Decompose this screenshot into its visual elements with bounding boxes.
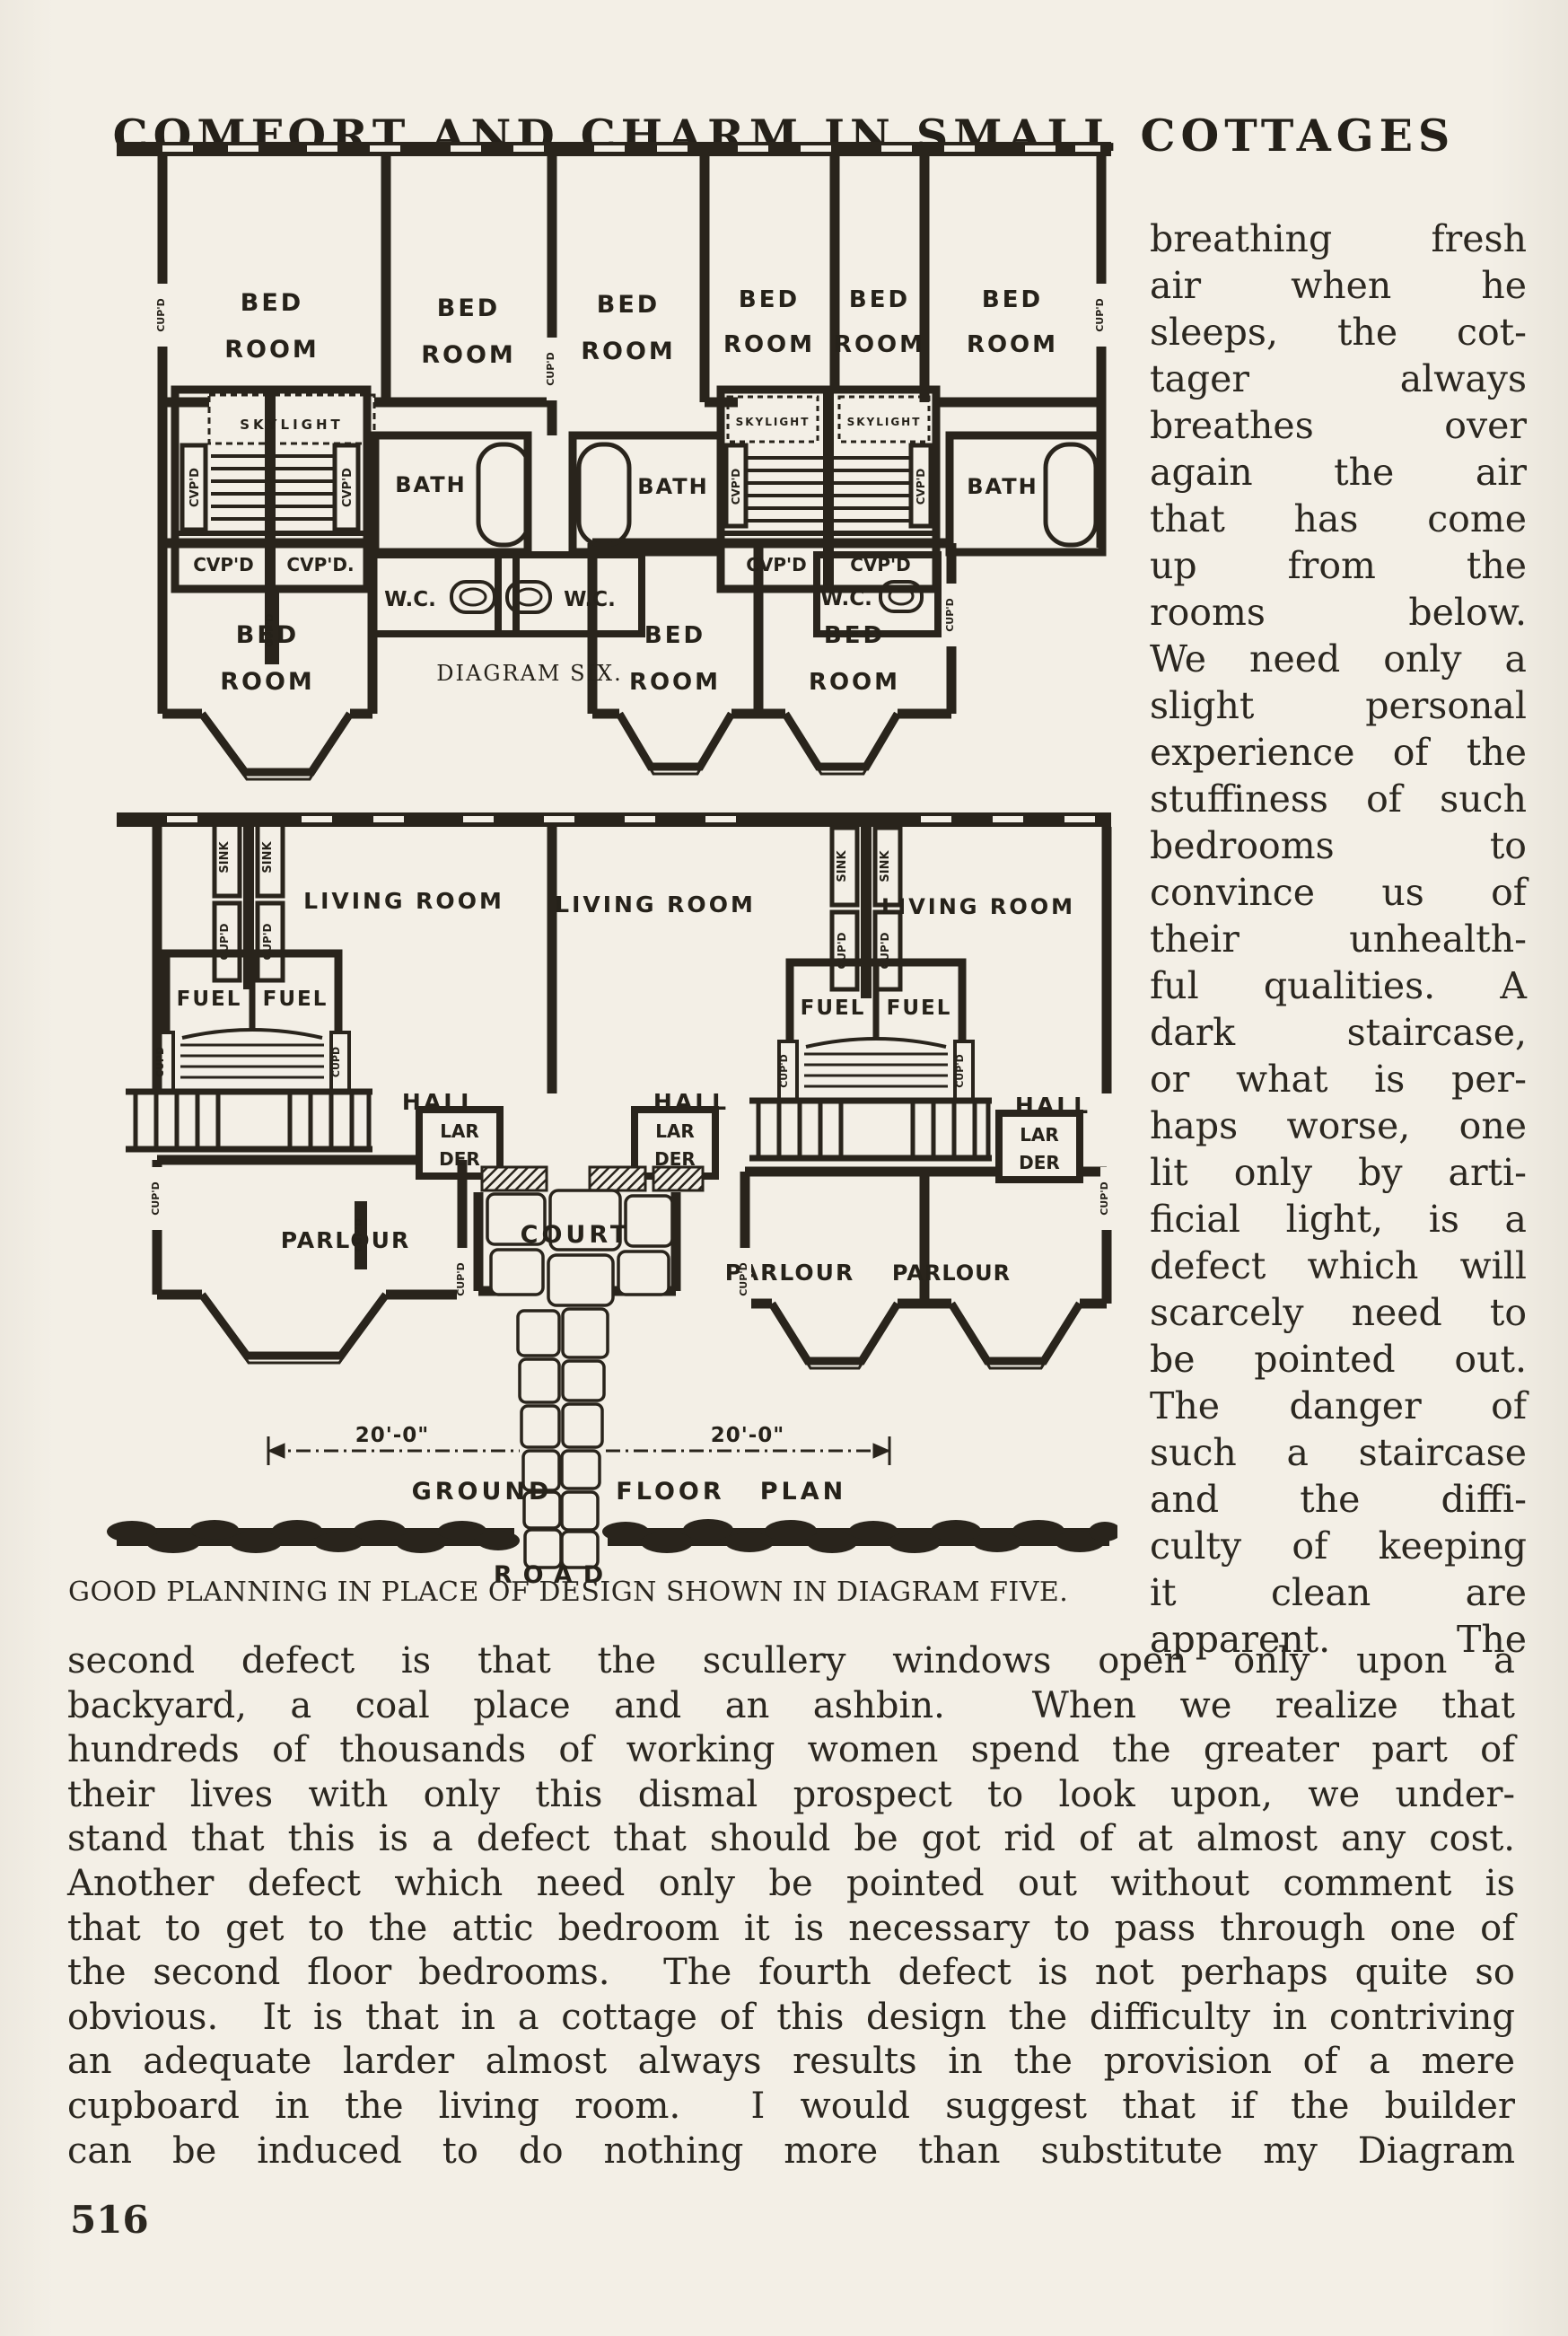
text-line: breathes over xyxy=(1150,402,1527,449)
bedroom-label: BED xyxy=(437,294,500,322)
cupboard-label: CUPD xyxy=(330,1047,342,1077)
plan-title-word: PLAN xyxy=(760,1478,847,1506)
text-line: sleeps, the cot- xyxy=(1150,309,1527,356)
cupboard-label: CUPD xyxy=(154,1047,166,1077)
bedroom-label: ROOM xyxy=(723,331,815,358)
text-line: the second floor bedrooms. The fourth de… xyxy=(67,1951,1515,1996)
text-line: hundreds of thousands of working women s… xyxy=(67,1728,1515,1773)
bedroom-label: ROOM xyxy=(581,338,676,365)
living-room-label: LIVING ROOM xyxy=(555,891,756,918)
bedroom-label: ROOM xyxy=(224,336,320,364)
ground-floor-plan-title: GROUND FLOOR PLAN xyxy=(412,1478,847,1506)
fuel-label: FUEL xyxy=(263,988,328,1011)
bedroom-label: BED xyxy=(236,621,299,649)
text-line: that to get to the attic bedroom it is n… xyxy=(67,1907,1515,1952)
bedroom-label: ROOM xyxy=(809,669,900,696)
book-page: COMFORT AND CHARM IN SMALL COTTAGES xyxy=(0,0,1568,2336)
cupboard-label: CUP'D xyxy=(1094,298,1106,332)
bay-windows-upper xyxy=(202,714,898,779)
text-line: scarcely need to xyxy=(1150,1289,1527,1336)
text-line: their lives with only this dismal prospe… xyxy=(67,1773,1515,1818)
larder-label: LAR xyxy=(440,1120,479,1142)
road-wall xyxy=(107,1519,1117,1553)
text-line: We need only a xyxy=(1150,636,1527,682)
text-line: obvious. It is that in a cottage of this… xyxy=(67,1996,1515,2041)
dimension-label: 20'-0" xyxy=(711,1424,785,1447)
text-line: convince us of xyxy=(1150,869,1527,916)
bedroom-label: ROOM xyxy=(220,668,315,696)
cupboard-label: CVP'D xyxy=(193,554,254,575)
skylight-label: SKYLIGHT xyxy=(847,416,922,428)
bedroom-labels-front: BED ROOM BED ROOM BED ROOM BED ROOM BED … xyxy=(224,286,1058,369)
fuel-label: FUEL xyxy=(177,988,242,1011)
text-line: tager always xyxy=(1150,356,1527,402)
upper-floor-plan: SKYLIGHT CVP'D CVP'D CVP'D CVP'D. CVP'D xyxy=(117,142,1111,779)
bath-label: BATH xyxy=(637,474,708,499)
cupboard-label: CVP'D xyxy=(188,468,202,507)
sink-label: SINK xyxy=(836,849,849,882)
text-line: their unhealth- xyxy=(1150,916,1527,962)
text-line: up from the xyxy=(1150,542,1527,589)
bedroom-label: BED xyxy=(824,622,885,649)
cupboard-label: CUP'D xyxy=(155,298,167,332)
porch-railings xyxy=(126,1092,992,1158)
cupboard-label: CUP'D xyxy=(150,1181,162,1216)
text-line: and the diffi- xyxy=(1150,1476,1527,1523)
sink-label: SINK xyxy=(879,849,892,882)
text-line: backyard, a coal place and an ashbin. Wh… xyxy=(67,1684,1515,1729)
fuel-label: FUEL xyxy=(801,997,866,1020)
skylight-label: SKYLIGHT xyxy=(736,416,810,428)
larder-label: LAR xyxy=(1020,1124,1059,1146)
text-line: be pointed out. xyxy=(1150,1336,1527,1383)
cupboard-label: CUP'D xyxy=(738,1262,749,1296)
bedroom-label: BED xyxy=(849,286,910,313)
bath-label: BATH xyxy=(395,472,466,497)
text-line: slight personal xyxy=(1150,682,1527,729)
text-line: can be induced to do nothing more than s… xyxy=(67,2130,1515,2174)
bathtub-icon xyxy=(579,444,629,545)
ground-floor-plan: SINK SINK CUP'D CUP'D SINK SINK CUP'D CU… xyxy=(107,812,1117,1585)
text-line: again the air xyxy=(1150,449,1527,496)
bedroom-label: BED xyxy=(241,289,303,317)
sink-label: SINK xyxy=(218,840,232,873)
bath-label: BATH xyxy=(967,474,1038,499)
skylight-label: SKYLIGHT xyxy=(240,417,344,433)
bedroom-label: ROOM xyxy=(629,669,721,696)
text-line: second defect is that the scullery windo… xyxy=(67,1639,1515,1684)
text-line: or what is per- xyxy=(1150,1056,1527,1102)
larder-label: DER xyxy=(1019,1152,1060,1173)
toilet-icon xyxy=(451,582,495,612)
wc-label: W.C. xyxy=(820,587,872,610)
cupboard-label: CVP'D. xyxy=(286,554,354,575)
text-line: stand that this is a defect that should … xyxy=(67,1817,1515,1862)
text-line: bedrooms to xyxy=(1150,822,1527,869)
parlour-label: PARLOUR xyxy=(281,1227,410,1253)
cupboard-label: CVP'D xyxy=(341,468,355,507)
text-line: cupboard in the living room. I would sug… xyxy=(67,2085,1515,2130)
living-room-label: LIVING ROOM xyxy=(881,894,1075,919)
fuel-label: FUEL xyxy=(887,997,952,1020)
cupboard-label: CVP'D xyxy=(915,469,927,505)
cupboard-label: CVP'D xyxy=(746,554,807,575)
cupboard-label: CUP'D xyxy=(1099,1181,1110,1216)
bathtub-icon xyxy=(478,444,529,545)
bedroom-label: BED xyxy=(644,622,705,649)
larder-label: DER xyxy=(439,1148,480,1170)
bedroom-label: BED xyxy=(597,291,660,319)
cupboard-label: CUP'D xyxy=(545,352,556,386)
court-sills xyxy=(482,1167,703,1190)
text-line: that has come xyxy=(1150,496,1527,542)
text-line: Another defect which need only be pointe… xyxy=(67,1862,1515,1907)
text-line: culty of keeping xyxy=(1150,1523,1527,1569)
living-room-label: LIVING ROOM xyxy=(303,888,504,914)
text-line: experience of the xyxy=(1150,729,1527,776)
diagram-title: DIAGRAM SIX. xyxy=(436,661,622,686)
figure-caption: GOOD PLANNING IN PLACE OF DESIGN SHOWN I… xyxy=(68,1576,1082,1608)
text-line: air when he xyxy=(1150,262,1527,309)
text-line: defect which will xyxy=(1150,1243,1527,1289)
text-line: lit only by arti- xyxy=(1150,1149,1527,1196)
text-line: haps worse, one xyxy=(1150,1102,1527,1149)
cupboard-label: CUP'D xyxy=(944,598,956,632)
plan-title-word: GROUND xyxy=(412,1478,553,1506)
staircase-middle: SKYLIGHT SKYLIGHT CVP'D CVP'D CVP'D CVP'… xyxy=(721,390,936,589)
cupboard-label: CUP'D xyxy=(353,1218,364,1252)
text-line: ful qualities. A xyxy=(1150,962,1527,1009)
right-text-column: breathing fresh air when he sleeps, the … xyxy=(1150,215,1527,1663)
text-line: stuffiness of such xyxy=(1150,776,1527,822)
body-paragraph: second defect is that the scullery windo… xyxy=(67,1639,1515,2174)
text-line: ficial light, is a xyxy=(1150,1196,1527,1243)
court-label: COURT xyxy=(521,1221,631,1249)
text-line: The danger of xyxy=(1150,1383,1527,1429)
cupboard-label: CUP'D xyxy=(455,1262,467,1296)
text-line: an adequate larder almost always results… xyxy=(67,2040,1515,2085)
plan-title-word: FLOOR xyxy=(616,1478,724,1506)
text-line: such a staircase xyxy=(1150,1429,1527,1476)
front-wall xyxy=(117,142,1111,156)
text-line: it clean are xyxy=(1150,1569,1527,1616)
page-number: 516 xyxy=(70,2198,149,2242)
bedroom-label: BED xyxy=(739,286,800,313)
diagram-six-svg: SKYLIGHT CVP'D CVP'D CVP'D CVP'D. CVP'D xyxy=(76,135,1117,1585)
dimension-label: 20'-0" xyxy=(355,1424,430,1447)
text-line: breathing fresh xyxy=(1150,215,1527,262)
wc-label: W.C. xyxy=(564,588,616,611)
sink-label: SINK xyxy=(261,840,275,873)
cupboard-label: CUP'D xyxy=(954,1054,966,1088)
cupboard-label: CVP'D xyxy=(730,469,742,505)
cupboard-label: CUP'D xyxy=(778,1054,790,1088)
bedroom-label: ROOM xyxy=(834,331,925,358)
larder-label: LAR xyxy=(655,1120,695,1142)
wc-label: W.C. xyxy=(384,588,436,611)
bedroom-label: ROOM xyxy=(967,331,1058,358)
bedroom-label: ROOM xyxy=(421,341,516,369)
text-line: rooms below. xyxy=(1150,589,1527,636)
bedroom-label: BED xyxy=(982,286,1043,313)
parlour-label: PARLOUR xyxy=(892,1260,1011,1286)
text-line: dark staircase, xyxy=(1150,1009,1527,1056)
bathtub-icon xyxy=(1046,444,1096,545)
fuel-stores: FUEL FUEL FUEL FUEL xyxy=(166,953,962,1040)
floor-plan-diagram: SKYLIGHT CVP'D CVP'D CVP'D CVP'D. CVP'D xyxy=(76,135,1117,1585)
